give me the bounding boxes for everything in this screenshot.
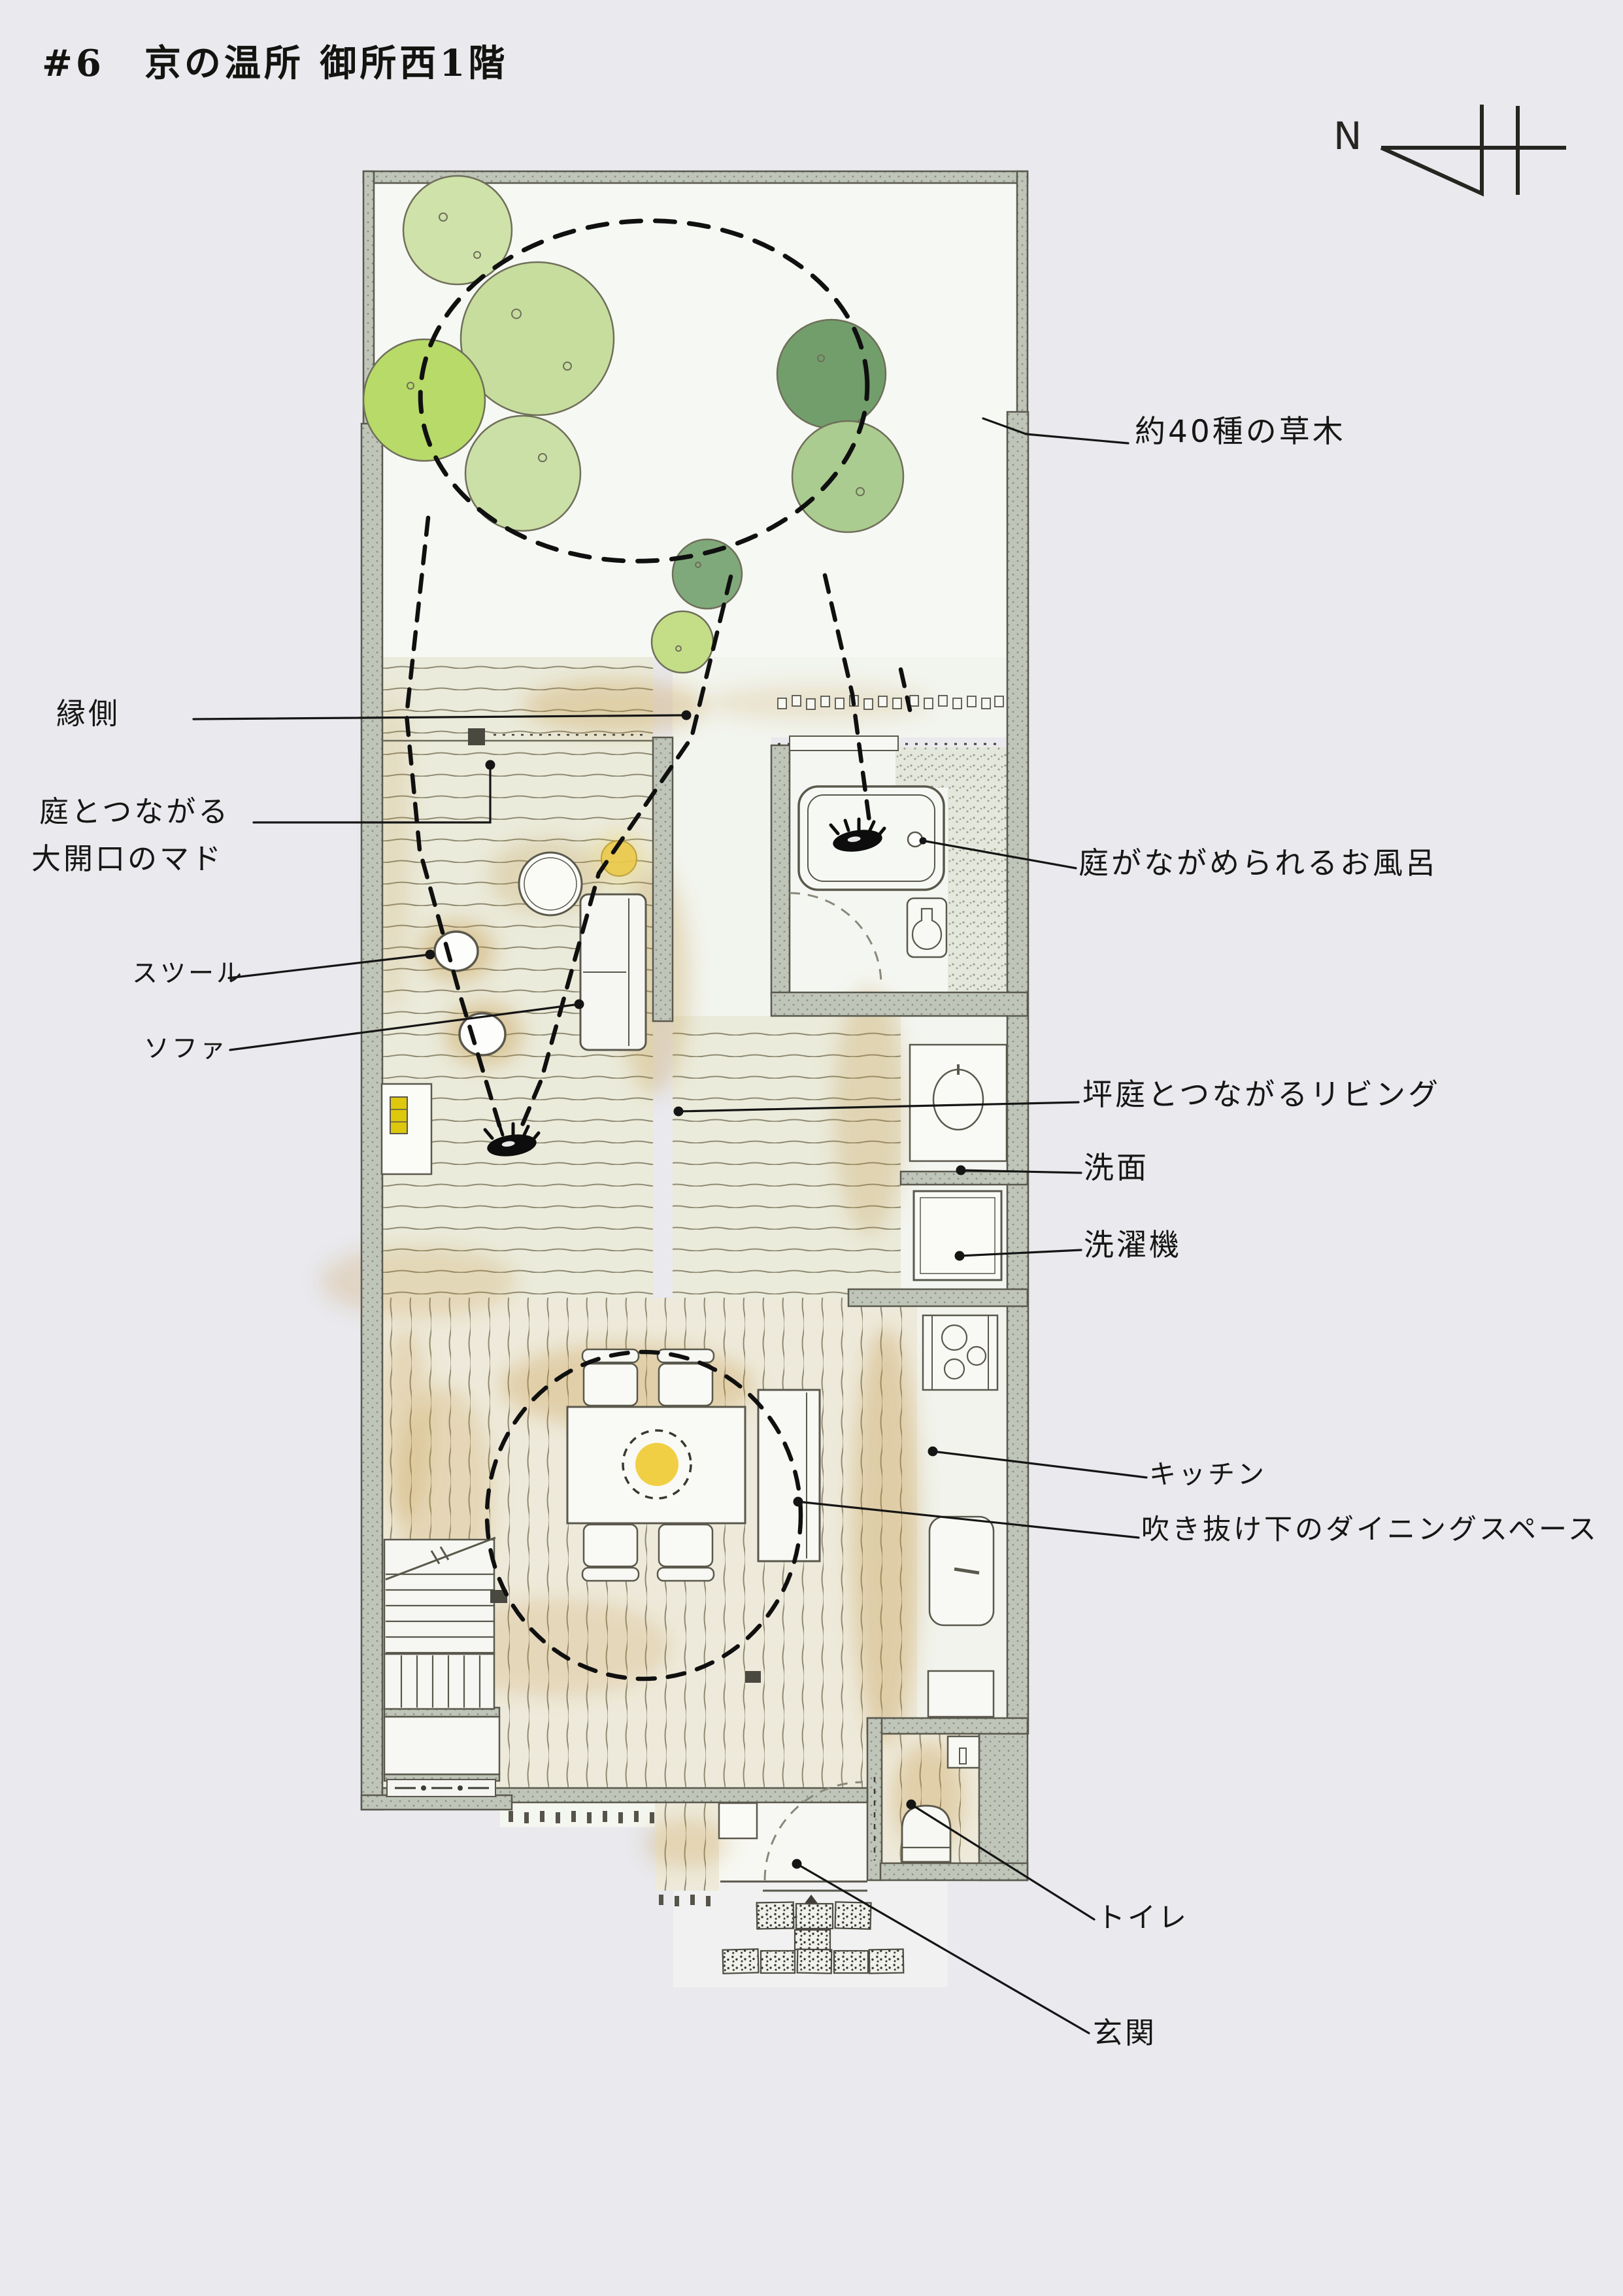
washbasin-counter (910, 1045, 1007, 1161)
door-stop (745, 1671, 761, 1683)
southwest-wall (361, 1795, 512, 1810)
tree (792, 421, 903, 532)
table-light (635, 1443, 678, 1486)
chair (659, 1364, 712, 1406)
annotation-garden-plants: 約40種の草木 (1135, 416, 1346, 448)
tree (673, 539, 742, 609)
bath-window (790, 736, 898, 751)
floor-plan-page: #6 京の温所 御所西1階 N 約40種の草木 縁側 庭とつながる 大開口のマド… (0, 0, 1623, 2296)
tv-board (382, 1084, 431, 1174)
north-arrow-icon (1381, 105, 1566, 195)
annotation-living: 坪庭とつながるリビング (1082, 1079, 1441, 1110)
chair (584, 1364, 637, 1406)
round-table (519, 853, 582, 915)
east-wall (1007, 412, 1028, 1734)
tree (652, 611, 713, 673)
sofa (580, 894, 646, 1050)
annotation-entrance: 玄関 (1093, 2017, 1157, 2048)
toilet-west-wall (867, 1718, 882, 1880)
annotation-washing-machine: 洗濯機 (1084, 1229, 1182, 1260)
annotation-mado-line2: 大開口のマド (31, 843, 224, 874)
corner-basin (948, 1736, 979, 1768)
annotation-mado-line1: 庭とつながる (39, 796, 230, 827)
shoe-cabinet (719, 1803, 757, 1838)
east-wall-lower (979, 1732, 1028, 1880)
door-stop (468, 728, 485, 745)
stool (435, 932, 478, 971)
kitchen-south-wall (867, 1718, 1028, 1734)
storage-room (384, 1717, 499, 1774)
kitchen-cabinet (928, 1671, 994, 1717)
closet-strip (387, 1780, 495, 1797)
north-label: N (1333, 116, 1363, 156)
chair (659, 1525, 712, 1566)
annotation-bath: 庭がながめられるお風呂 (1079, 847, 1438, 879)
annotation-engawa: 縁側 (56, 698, 120, 729)
annotation-dining: 吹き抜け下のダイニングスペース (1141, 1515, 1599, 1545)
page-title: #6 京の温所 御所西1階 (42, 44, 508, 83)
bath-west-wall (771, 745, 790, 995)
annotation-kitchen: キッチン (1149, 1460, 1267, 1489)
tsubo-niwa-gravel (948, 747, 1007, 994)
toilet-south-wall (880, 1863, 1028, 1880)
annotation-sofa: ソファ (144, 1036, 228, 1063)
stairs (384, 1538, 495, 1709)
kitchen-north-wall (848, 1289, 1028, 1306)
annotation-washbasin: 洗面 (1084, 1152, 1149, 1183)
chair-back (582, 1568, 639, 1581)
annotation-stool: スツール (132, 961, 244, 988)
bath-south-wall (771, 992, 1028, 1016)
bench (758, 1390, 820, 1561)
stove (923, 1315, 997, 1390)
washroom-basin (907, 898, 946, 957)
annotation-toilet: トイレ (1097, 1904, 1189, 1933)
washing-machine (914, 1191, 1001, 1280)
west-wall (361, 424, 382, 1810)
tree (777, 320, 886, 428)
tv (390, 1097, 407, 1134)
floor-plan-drawing (0, 0, 1623, 2296)
chair (584, 1525, 637, 1566)
kitchen-sink (929, 1517, 994, 1625)
chair-back (658, 1568, 714, 1581)
